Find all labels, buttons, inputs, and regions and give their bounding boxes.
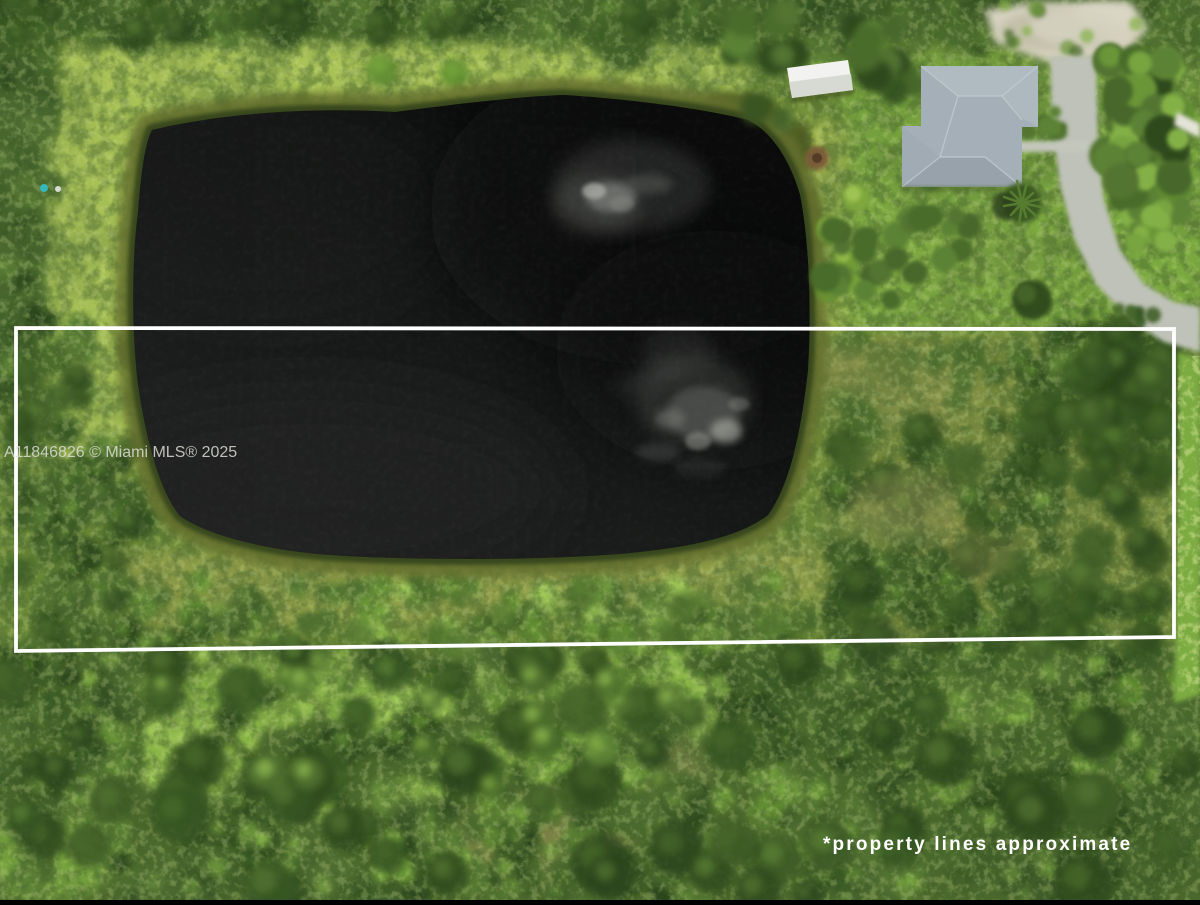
svg-text:*property lines approximate: *property lines approximate xyxy=(823,834,1132,855)
svg-text:A11846826 © Miami MLS® 2025: A11846826 © Miami MLS® 2025 xyxy=(4,444,237,461)
